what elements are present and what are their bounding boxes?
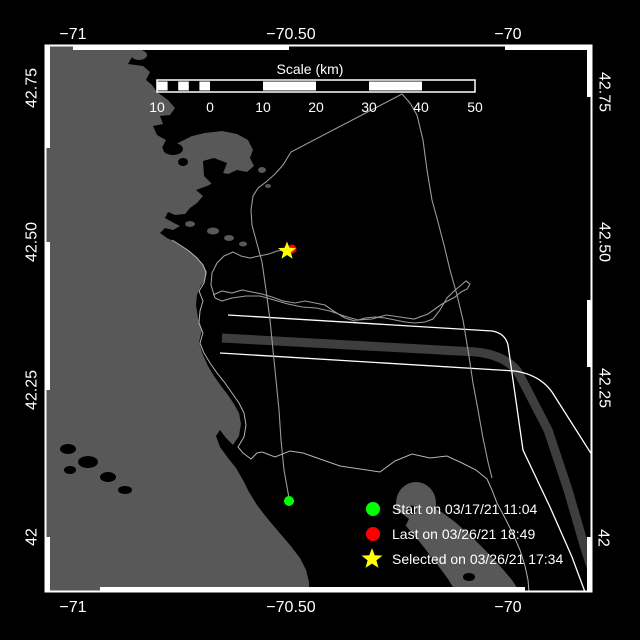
island xyxy=(155,216,165,222)
scale-tick-4: 30 xyxy=(361,99,377,115)
island xyxy=(239,242,247,247)
scale-tick-6: 50 xyxy=(467,99,483,115)
start-marker xyxy=(284,496,294,506)
drifter-track-map: −71 −70.50 −70 −71 −70.50 −70 42.75 42.5… xyxy=(0,0,640,640)
island xyxy=(207,228,219,235)
scale-tick-3: 20 xyxy=(308,99,324,115)
lat-label-left-3: 42 xyxy=(24,528,41,546)
lon-label-bottom-0: −71 xyxy=(59,599,86,616)
lat-label-left-2: 42.25 xyxy=(24,370,41,410)
lon-label-top-0: −71 xyxy=(59,26,86,43)
lon-label-top-2: −70 xyxy=(494,26,521,43)
scale-tick-5: 40 xyxy=(413,99,429,115)
lon-label-top-1: −70.50 xyxy=(266,26,315,43)
scale-bar-title: Scale (km) xyxy=(277,61,344,77)
pond xyxy=(463,573,475,581)
pond xyxy=(118,486,132,494)
legend-last-dot-icon xyxy=(366,527,380,541)
legend-selected-label: Selected on 03/26/21 17:34 xyxy=(392,551,563,567)
lat-label-right-3: 42 xyxy=(595,529,612,547)
lon-label-bottom-2: −70 xyxy=(494,599,521,616)
lat-label-right-2: 42.25 xyxy=(596,368,613,408)
pond xyxy=(78,456,98,468)
legend: Start on 03/17/21 11:04 Last on 03/26/21… xyxy=(362,501,564,568)
scale-tick-2: 10 xyxy=(255,99,271,115)
island xyxy=(224,235,234,241)
legend-start-label: Start on 03/17/21 11:04 xyxy=(392,501,538,517)
island xyxy=(258,167,266,173)
pond xyxy=(163,143,183,155)
pond xyxy=(64,466,76,474)
lat-label-left-0: 42.75 xyxy=(24,68,41,108)
island xyxy=(265,184,271,188)
pond xyxy=(60,444,76,454)
lat-label-right-0: 42.75 xyxy=(596,72,613,112)
scale-tick-1: 0 xyxy=(206,99,214,115)
island xyxy=(185,221,195,227)
lon-label-bottom-1: −70.50 xyxy=(266,599,315,616)
pond xyxy=(178,158,188,166)
pond xyxy=(100,472,116,482)
lat-label-left-1: 42.50 xyxy=(24,222,41,262)
lat-label-right-1: 42.50 xyxy=(596,222,613,262)
island xyxy=(131,50,147,60)
scale-tick-0: 10 xyxy=(149,99,165,115)
legend-last-label: Last on 03/26/21 18:49 xyxy=(392,526,535,542)
legend-start-dot-icon xyxy=(366,502,380,516)
